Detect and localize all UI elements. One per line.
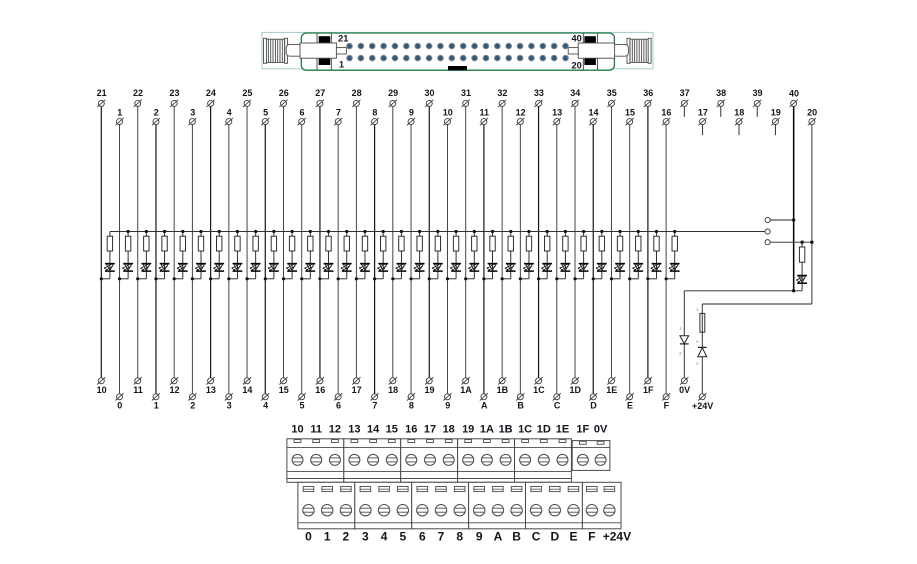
svg-text:A: A [481,400,488,410]
svg-text:F: F [664,400,670,410]
svg-text:1B: 1B [499,424,513,436]
svg-text:1F: 1F [643,385,654,395]
svg-text:5: 5 [399,530,406,544]
svg-text:33: 33 [534,88,544,98]
svg-text:29: 29 [388,88,398,98]
svg-text:1: 1 [117,108,122,118]
svg-text:36: 36 [643,88,653,98]
svg-text:D: D [590,400,597,410]
svg-text:11: 11 [133,385,143,395]
svg-text:12: 12 [516,108,526,118]
svg-text:C: C [554,400,561,410]
svg-text:1: 1 [324,530,331,544]
svg-text:0: 0 [117,400,122,410]
svg-text:B: B [517,400,524,410]
svg-text:1D: 1D [537,424,551,436]
svg-text:40: 40 [571,33,581,43]
svg-text:15: 15 [386,424,398,436]
svg-text:C: C [532,530,541,544]
svg-text:14: 14 [242,385,252,395]
svg-text:8: 8 [456,530,463,544]
svg-text:4: 4 [227,108,232,118]
svg-text:11: 11 [479,108,489,118]
svg-text:11: 11 [310,424,322,436]
svg-text:E: E [627,400,633,410]
svg-text:2: 2 [154,108,159,118]
svg-text:38: 38 [716,88,726,98]
svg-text:1B: 1B [497,385,509,395]
svg-text:12: 12 [169,385,179,395]
svg-text:15: 15 [625,108,635,118]
svg-text:14: 14 [589,108,599,118]
svg-text:34: 34 [570,88,580,98]
svg-text:31: 31 [461,88,471,98]
svg-text:35: 35 [607,88,617,98]
svg-text:A: A [494,530,503,544]
svg-text:24: 24 [206,88,216,98]
svg-text:7: 7 [438,530,445,544]
svg-text:21: 21 [97,88,107,98]
svg-text:25: 25 [242,88,252,98]
svg-text:0V: 0V [594,424,608,436]
svg-text:10: 10 [291,424,303,436]
svg-text:3: 3 [362,530,369,544]
svg-text:6: 6 [419,530,426,544]
svg-text:2: 2 [696,361,699,366]
svg-text:1: 1 [679,326,682,331]
svg-text:1F: 1F [576,424,589,436]
svg-text:17: 17 [424,424,436,436]
svg-text:6: 6 [300,108,305,118]
svg-text:7: 7 [336,108,341,118]
svg-text:1E: 1E [556,424,569,436]
svg-text:1: 1 [154,400,159,410]
svg-text:B: B [512,530,521,544]
svg-text:9: 9 [476,530,483,544]
svg-text:16: 16 [315,385,325,395]
svg-text:21: 21 [338,33,348,43]
svg-text:+24V: +24V [692,401,713,411]
svg-text:0: 0 [305,530,312,544]
svg-text:9: 9 [445,400,450,410]
svg-text:16: 16 [661,108,671,118]
svg-text:D: D [550,530,559,544]
svg-text:17: 17 [698,108,708,118]
svg-text:1D: 1D [570,385,582,395]
svg-text:13: 13 [348,424,360,436]
svg-text:18: 18 [734,108,744,118]
svg-text:2: 2 [343,530,350,544]
svg-text:1: 1 [696,307,699,312]
svg-text:10: 10 [443,108,453,118]
svg-text:28: 28 [352,88,362,98]
svg-text:20: 20 [571,61,581,71]
svg-text:4: 4 [263,400,268,410]
svg-text:17: 17 [352,385,362,395]
svg-text:19: 19 [425,385,435,395]
svg-text:32: 32 [497,88,507,98]
svg-text:19: 19 [462,424,474,436]
svg-text:3: 3 [227,400,232,410]
svg-text:13: 13 [206,385,216,395]
svg-text:0V: 0V [679,385,690,395]
svg-text:40: 40 [789,88,799,98]
svg-text:23: 23 [169,88,179,98]
svg-text:7: 7 [372,400,377,410]
svg-text:18: 18 [388,385,398,395]
svg-text:F: F [588,530,595,544]
svg-text:19: 19 [771,108,781,118]
svg-text:12: 12 [329,424,341,436]
svg-text:8: 8 [409,400,414,410]
svg-text:13: 13 [552,108,562,118]
svg-text:9: 9 [409,108,414,118]
svg-text:2: 2 [679,351,682,356]
svg-text:5: 5 [263,108,268,118]
svg-text:16: 16 [405,424,417,436]
svg-text:+24V: +24V [603,530,631,544]
svg-text:14: 14 [367,424,380,436]
svg-text:20: 20 [807,108,817,118]
svg-text:5: 5 [300,400,305,410]
svg-text:26: 26 [279,88,289,98]
svg-text:22: 22 [133,88,143,98]
svg-text:1E: 1E [606,385,617,395]
svg-text:2: 2 [190,400,195,410]
svg-text:18: 18 [443,424,455,436]
svg-text:1C: 1C [533,385,545,395]
svg-text:30: 30 [425,88,435,98]
svg-text:4: 4 [381,530,388,544]
svg-text:6: 6 [336,400,341,410]
svg-text:1: 1 [339,60,344,70]
svg-text:10: 10 [97,385,107,395]
svg-text:39: 39 [753,88,763,98]
svg-text:3: 3 [190,108,195,118]
svg-text:15: 15 [279,385,289,395]
svg-text:27: 27 [315,88,325,98]
svg-text:E: E [569,530,577,544]
svg-text:1C: 1C [518,424,532,436]
svg-text:8: 8 [372,108,377,118]
svg-text:1A: 1A [460,385,472,395]
svg-text:2: 2 [696,339,699,344]
svg-text:37: 37 [680,88,690,98]
svg-text:1A: 1A [480,424,494,436]
